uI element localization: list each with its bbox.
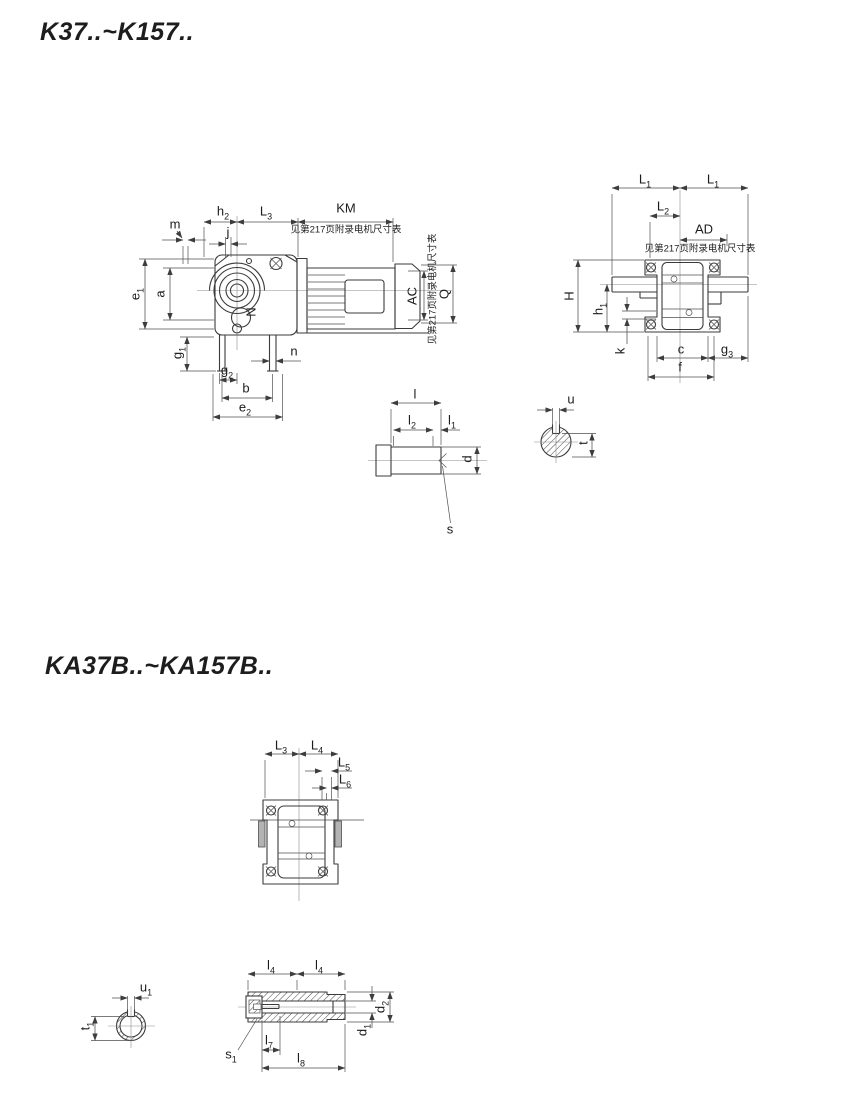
label-base: l bbox=[414, 387, 417, 402]
label-base: H bbox=[562, 291, 577, 300]
label-sub: 2 bbox=[664, 206, 669, 216]
dim-label-f: f bbox=[678, 361, 682, 378]
dim-label-g1: g1 bbox=[171, 347, 188, 359]
dim-label-h2: h2 bbox=[217, 205, 229, 222]
terminal-box bbox=[345, 280, 384, 313]
dim-label-AC: AC bbox=[406, 287, 423, 305]
dim-label-l2: l2 bbox=[408, 414, 416, 431]
dim-label-H: H bbox=[563, 291, 580, 300]
label-base: h bbox=[591, 308, 606, 315]
side-view-drawing bbox=[139, 216, 457, 421]
dim-label-g3: g3 bbox=[721, 343, 733, 360]
dim-label-h1: h1 bbox=[592, 303, 609, 315]
dim-label-b: b bbox=[242, 382, 249, 399]
dim-label-l4-right: l4 bbox=[315, 959, 323, 976]
section1-title: K37..~K157.. bbox=[40, 18, 194, 47]
label-sub: 1 bbox=[362, 1024, 372, 1029]
technical-drawings bbox=[0, 0, 860, 1118]
label-sub: 1 bbox=[646, 179, 651, 189]
dim-label-s: s bbox=[447, 523, 454, 540]
dim-label-l: l bbox=[414, 388, 417, 405]
dim-label-d1: d1 bbox=[356, 1024, 373, 1036]
dim-label-a: a bbox=[154, 290, 171, 297]
dim-label-g2: g2 bbox=[221, 364, 233, 381]
dim-label-t1: t1 bbox=[79, 1022, 96, 1031]
label-sub: 1 bbox=[598, 303, 608, 308]
motor-note-horizontal: 见第217页附录电机尺寸表 bbox=[291, 225, 402, 235]
dim-label-L6: L6 bbox=[339, 773, 351, 790]
label-sub: 1 bbox=[451, 420, 456, 430]
label-base: g bbox=[170, 352, 185, 359]
label-base: d bbox=[460, 455, 475, 462]
label-base: t bbox=[576, 441, 591, 445]
side-tab-right bbox=[335, 821, 342, 847]
dim-label-n: n bbox=[290, 345, 297, 362]
label-sub: 1 bbox=[85, 1022, 95, 1027]
dim-label-L1-left: L1 bbox=[639, 173, 651, 190]
catalog-page: K37..~K157.. KA37B..~KA157B.. m h2 j L3 … bbox=[0, 0, 860, 1118]
dim-label-l1: l1 bbox=[448, 414, 456, 431]
label-base: AD bbox=[695, 222, 713, 237]
dim-label-d: d bbox=[461, 455, 478, 462]
label-sub: 7 bbox=[268, 1040, 273, 1050]
label-sub: 1 bbox=[147, 987, 152, 997]
side-view-dimensions bbox=[139, 218, 457, 421]
label-base: b bbox=[242, 381, 249, 396]
dim-label-KM: KM bbox=[336, 202, 356, 219]
side-tab-left bbox=[259, 821, 266, 847]
dim-label-N: N bbox=[245, 307, 262, 316]
motor-fins bbox=[308, 275, 345, 324]
label-base: KM bbox=[336, 201, 356, 216]
dim-label-c: c bbox=[678, 343, 685, 360]
hollow-shaft-cross-section bbox=[91, 996, 155, 1048]
label-sub: 2 bbox=[246, 407, 251, 417]
label-base: u bbox=[567, 392, 574, 407]
dim-label-l8: l8 bbox=[297, 1052, 305, 1069]
label-sub: 3 bbox=[282, 745, 287, 755]
dim-label-Q: Q bbox=[438, 289, 455, 299]
label-sub: 1 bbox=[714, 179, 719, 189]
dim-label-L2: L2 bbox=[657, 200, 669, 217]
label-sub: 2 bbox=[380, 1001, 390, 1006]
dim-label-l7: l7 bbox=[265, 1034, 273, 1051]
label-base: e bbox=[128, 293, 143, 300]
shaft-end-detail bbox=[368, 403, 487, 523]
dim-label-L1-right: L1 bbox=[707, 173, 719, 190]
label-sub: 2 bbox=[228, 370, 233, 380]
dim-label-e2: e2 bbox=[239, 401, 251, 418]
label-base: d bbox=[373, 1006, 388, 1013]
label-base: j bbox=[227, 225, 230, 240]
dim-label-l4-left: l4 bbox=[267, 959, 275, 976]
dim-label-k: k bbox=[614, 348, 631, 355]
label-sub: 4 bbox=[318, 965, 323, 975]
label-sub: 4 bbox=[318, 745, 323, 755]
dim-label-j: j bbox=[227, 226, 230, 243]
gearbox-housing bbox=[183, 246, 297, 371]
label-sub: 3 bbox=[267, 211, 272, 221]
shaft-detail-dimensions bbox=[391, 403, 477, 474]
label-sub: 6 bbox=[346, 779, 351, 789]
label-sub: 1 bbox=[135, 288, 145, 293]
dim-label-L5: L5 bbox=[338, 756, 350, 773]
label-base: d bbox=[355, 1029, 370, 1036]
dim-label-L4: L4 bbox=[311, 739, 323, 756]
dim-label-AD: AD bbox=[695, 223, 713, 240]
label-base: k bbox=[613, 348, 628, 355]
dim-label-s1: s1 bbox=[225, 1048, 237, 1065]
label-base: N bbox=[244, 307, 259, 316]
label-sub: 1 bbox=[232, 1054, 237, 1064]
label-base: m bbox=[170, 217, 181, 232]
label-sub: 2 bbox=[411, 420, 416, 430]
label-base: Q bbox=[437, 289, 452, 299]
label-base: s bbox=[447, 522, 454, 537]
label-sub: 3 bbox=[728, 349, 733, 359]
dim-label-t: t bbox=[577, 441, 594, 445]
label-sub: 2 bbox=[224, 211, 229, 221]
dim-label-d2: d2 bbox=[374, 1001, 391, 1013]
label-sub: 4 bbox=[270, 965, 275, 975]
dim-label-L3-top: L3 bbox=[275, 739, 287, 756]
screw-hole-icon bbox=[270, 258, 282, 270]
label-base: c bbox=[678, 342, 685, 357]
shaft-cross-section bbox=[534, 408, 596, 463]
label-base: t bbox=[78, 1027, 93, 1031]
bolt-hole-icon bbox=[266, 806, 328, 877]
label-base: a bbox=[153, 290, 168, 297]
label-sub: 1 bbox=[177, 347, 187, 352]
dim-label-u1: u1 bbox=[140, 981, 152, 998]
dim-label-u: u bbox=[567, 393, 574, 410]
label-base: AC bbox=[405, 287, 420, 305]
label-base: f bbox=[678, 360, 682, 375]
dim-label-L3: L3 bbox=[260, 205, 272, 222]
section2-title: KA37B..~KA157B.. bbox=[45, 652, 273, 681]
motor-note-end-view: 见第217页附录电机尺寸表 bbox=[645, 244, 756, 254]
label-sub: 8 bbox=[300, 1058, 305, 1068]
dim-label-m: m bbox=[170, 218, 181, 235]
dim-label-e1: e1 bbox=[129, 288, 146, 300]
label-base: n bbox=[290, 344, 297, 359]
